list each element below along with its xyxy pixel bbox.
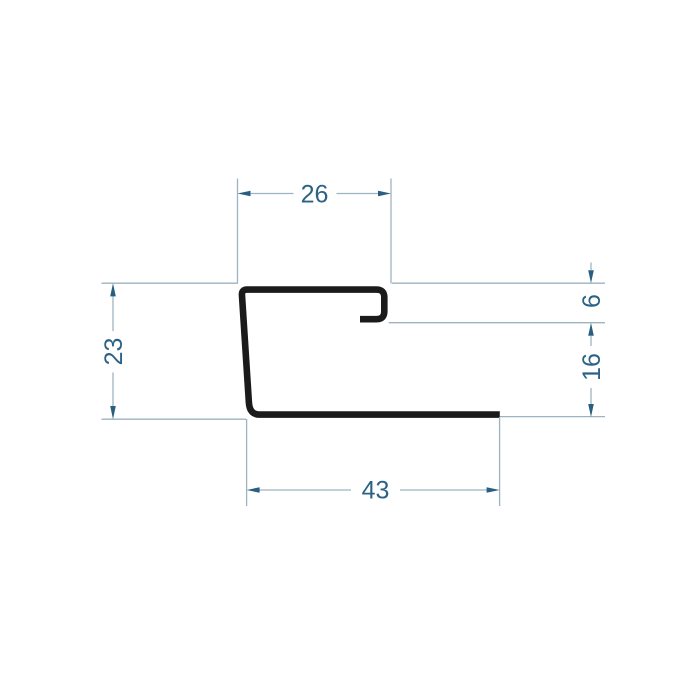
dimension-bottom-width: 43 [247,417,500,506]
arrowhead-down-icon [588,270,594,283]
dimension-opening-height: 16 [578,323,606,417]
arrowhead-right-icon [487,487,500,493]
dimension-label-left-height: 23 [100,338,128,366]
arrowhead-down-icon [588,404,594,417]
dimension-top-width: 26 [238,179,392,284]
arrowhead-down-icon [110,406,116,419]
extension-lines-right [389,283,605,416]
dimension-label-top-width: 26 [301,181,329,209]
dimension-label-bottom-width: 43 [362,477,390,505]
profile-outline [242,290,500,415]
arrowhead-up-icon [110,283,116,296]
dimension-left-height: 23 [100,283,246,419]
arrowhead-left-icon [247,487,260,493]
dimension-label-lip-height: 6 [578,294,606,308]
arrowhead-right-icon [378,191,391,197]
arrowhead-up-icon [588,323,594,336]
dimension-label-opening-height: 16 [578,353,606,381]
dimension-lip-height: 6 [578,263,606,308]
technical-drawing: 26 23 6 16 [0,0,700,700]
drawing-canvas: 26 23 6 16 [0,0,700,700]
profile-path [242,290,500,415]
arrowhead-left-icon [238,191,251,197]
